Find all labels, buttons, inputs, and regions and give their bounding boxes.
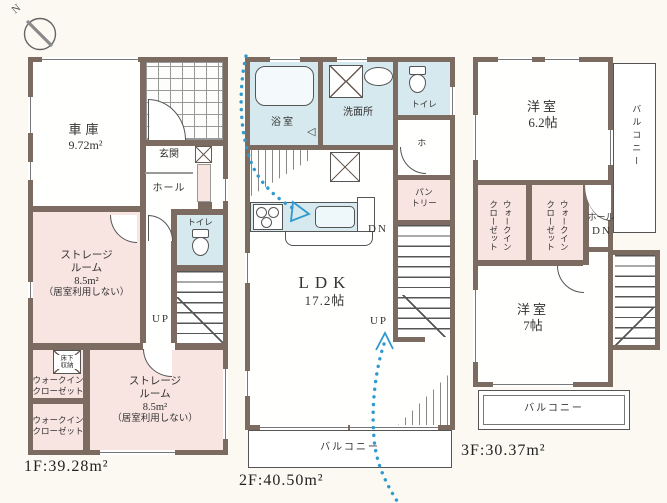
window bbox=[100, 450, 175, 455]
floor3-plan: バルコニー バルコニー 洋室 6.2帖 ウォークインクローゼット ウォークインク… bbox=[473, 57, 665, 435]
storage1-label: ストレージルーム 8.5m²（居室利用しない） bbox=[38, 249, 135, 300]
garage-door-opening bbox=[42, 57, 138, 62]
kitchen-sink-icon bbox=[315, 206, 355, 228]
balcony-3f-bottom: バルコニー bbox=[478, 390, 630, 430]
toilet-icon bbox=[190, 229, 210, 259]
floor3-area-label: 3F:30.37m² bbox=[461, 441, 546, 461]
balcony-2f: バルコニー bbox=[248, 430, 452, 468]
entrance-side-strip bbox=[197, 164, 211, 202]
window bbox=[498, 57, 532, 62]
toilet-bowl-icon bbox=[192, 237, 209, 256]
ldk-label: LDK 17.2帖 bbox=[275, 272, 375, 310]
window bbox=[245, 253, 250, 283]
toilet-label-2f: トイレ bbox=[398, 99, 450, 110]
window bbox=[223, 369, 228, 439]
up-label-2f: UP bbox=[363, 315, 395, 329]
floor1-plan: 床下収納 車庫 9.72m² 玄関 ホール トイレ ストレージルーム 8.5m²… bbox=[28, 57, 228, 455]
wic2-label: ウォークインクローゼット bbox=[30, 415, 86, 436]
stairs-2f-diagonal bbox=[398, 295, 450, 337]
window bbox=[223, 179, 228, 201]
wall bbox=[393, 337, 425, 342]
window bbox=[473, 290, 478, 362]
hall-label-3f: ホール bbox=[581, 212, 621, 223]
wic-left-label-3f: ウォークインクローゼット bbox=[486, 190, 513, 260]
wall bbox=[175, 343, 223, 350]
compass-icon bbox=[25, 19, 56, 50]
window bbox=[270, 57, 300, 62]
wall bbox=[655, 250, 660, 350]
toilet-icon bbox=[407, 66, 427, 96]
wall bbox=[250, 145, 393, 150]
floorplan-canvas: N bbox=[0, 0, 667, 503]
toilet-label-1f: トイレ bbox=[177, 217, 223, 228]
wall bbox=[398, 175, 450, 180]
room-b-label: 洋室 7帖 bbox=[483, 302, 583, 335]
window bbox=[545, 57, 579, 62]
floor1-area-label: 1F:39.28m² bbox=[24, 457, 109, 477]
stove-icon bbox=[253, 204, 283, 230]
balcony-3f-side-label: バルコニー bbox=[630, 104, 641, 169]
compass-needle-icon bbox=[27, 21, 52, 46]
window bbox=[28, 282, 33, 298]
refrigerator-space-icon bbox=[330, 152, 360, 182]
toilet-bowl-icon bbox=[409, 74, 426, 93]
bath-label: 浴室 bbox=[253, 117, 313, 130]
entrance-label: 玄関 bbox=[147, 149, 191, 162]
wall bbox=[198, 202, 212, 213]
stairs-1f-diagonal bbox=[177, 297, 223, 343]
window bbox=[28, 97, 33, 133]
wall bbox=[583, 247, 613, 252]
compass-north-label: N bbox=[10, 2, 25, 18]
hall-label-1f: ホール bbox=[145, 183, 193, 196]
balcony-2f-label: バルコニー bbox=[249, 442, 451, 455]
garage-label: 車庫 9.72m² bbox=[48, 122, 123, 153]
balcony-3f-side: バルコニー bbox=[613, 63, 656, 233]
balcony-inner-line bbox=[483, 395, 625, 425]
wall bbox=[473, 57, 613, 62]
bathtub-icon bbox=[255, 66, 314, 106]
wall bbox=[526, 185, 532, 263]
window bbox=[245, 371, 250, 396]
window bbox=[337, 57, 367, 62]
dn-label-2f: DN bbox=[363, 223, 393, 237]
burner-icon bbox=[261, 217, 272, 228]
wic-right-label-3f: ウォークインクローゼット bbox=[543, 190, 570, 260]
pantry-label: パントリー bbox=[398, 187, 450, 208]
floor2-area-label: 2F:40.50m² bbox=[239, 471, 324, 491]
wall bbox=[613, 345, 660, 350]
burner-icon bbox=[268, 207, 279, 218]
wall bbox=[33, 206, 146, 212]
balcony-door-bottom bbox=[493, 382, 573, 387]
wall bbox=[33, 343, 143, 350]
wall bbox=[398, 115, 450, 120]
washer-space-icon bbox=[329, 65, 363, 98]
shoe-cabinet-icon bbox=[195, 146, 212, 163]
floor2-plan: ◁ バルコニー 浴室 洗面所 トイレ ホール パントリー bbox=[245, 57, 455, 470]
storage2-label: ストレージルーム 8.5m²（居室利用しない） bbox=[90, 375, 220, 426]
up-label-1f: UP bbox=[134, 313, 170, 327]
toilet1f-door-arc bbox=[148, 215, 173, 241]
underfloor-storage-box: 床下収納 bbox=[53, 350, 81, 374]
stairs-3f-diagonal bbox=[615, 307, 655, 345]
counter-front bbox=[285, 232, 373, 246]
wall bbox=[318, 62, 323, 145]
washbasin-icon bbox=[364, 67, 393, 86]
wall bbox=[33, 398, 83, 404]
washroom-label: 洗面所 bbox=[325, 107, 391, 120]
wic1-label: ウォークインクローゼット bbox=[30, 375, 86, 396]
window bbox=[28, 162, 33, 180]
room-a-label: 洋室 6.2帖 bbox=[493, 99, 593, 132]
dn-label-3f: DN bbox=[585, 225, 619, 239]
underfloor-storage-label: 床下収納 bbox=[58, 355, 76, 369]
entrance-step-line bbox=[145, 172, 193, 174]
window bbox=[473, 115, 478, 160]
window bbox=[450, 87, 455, 115]
